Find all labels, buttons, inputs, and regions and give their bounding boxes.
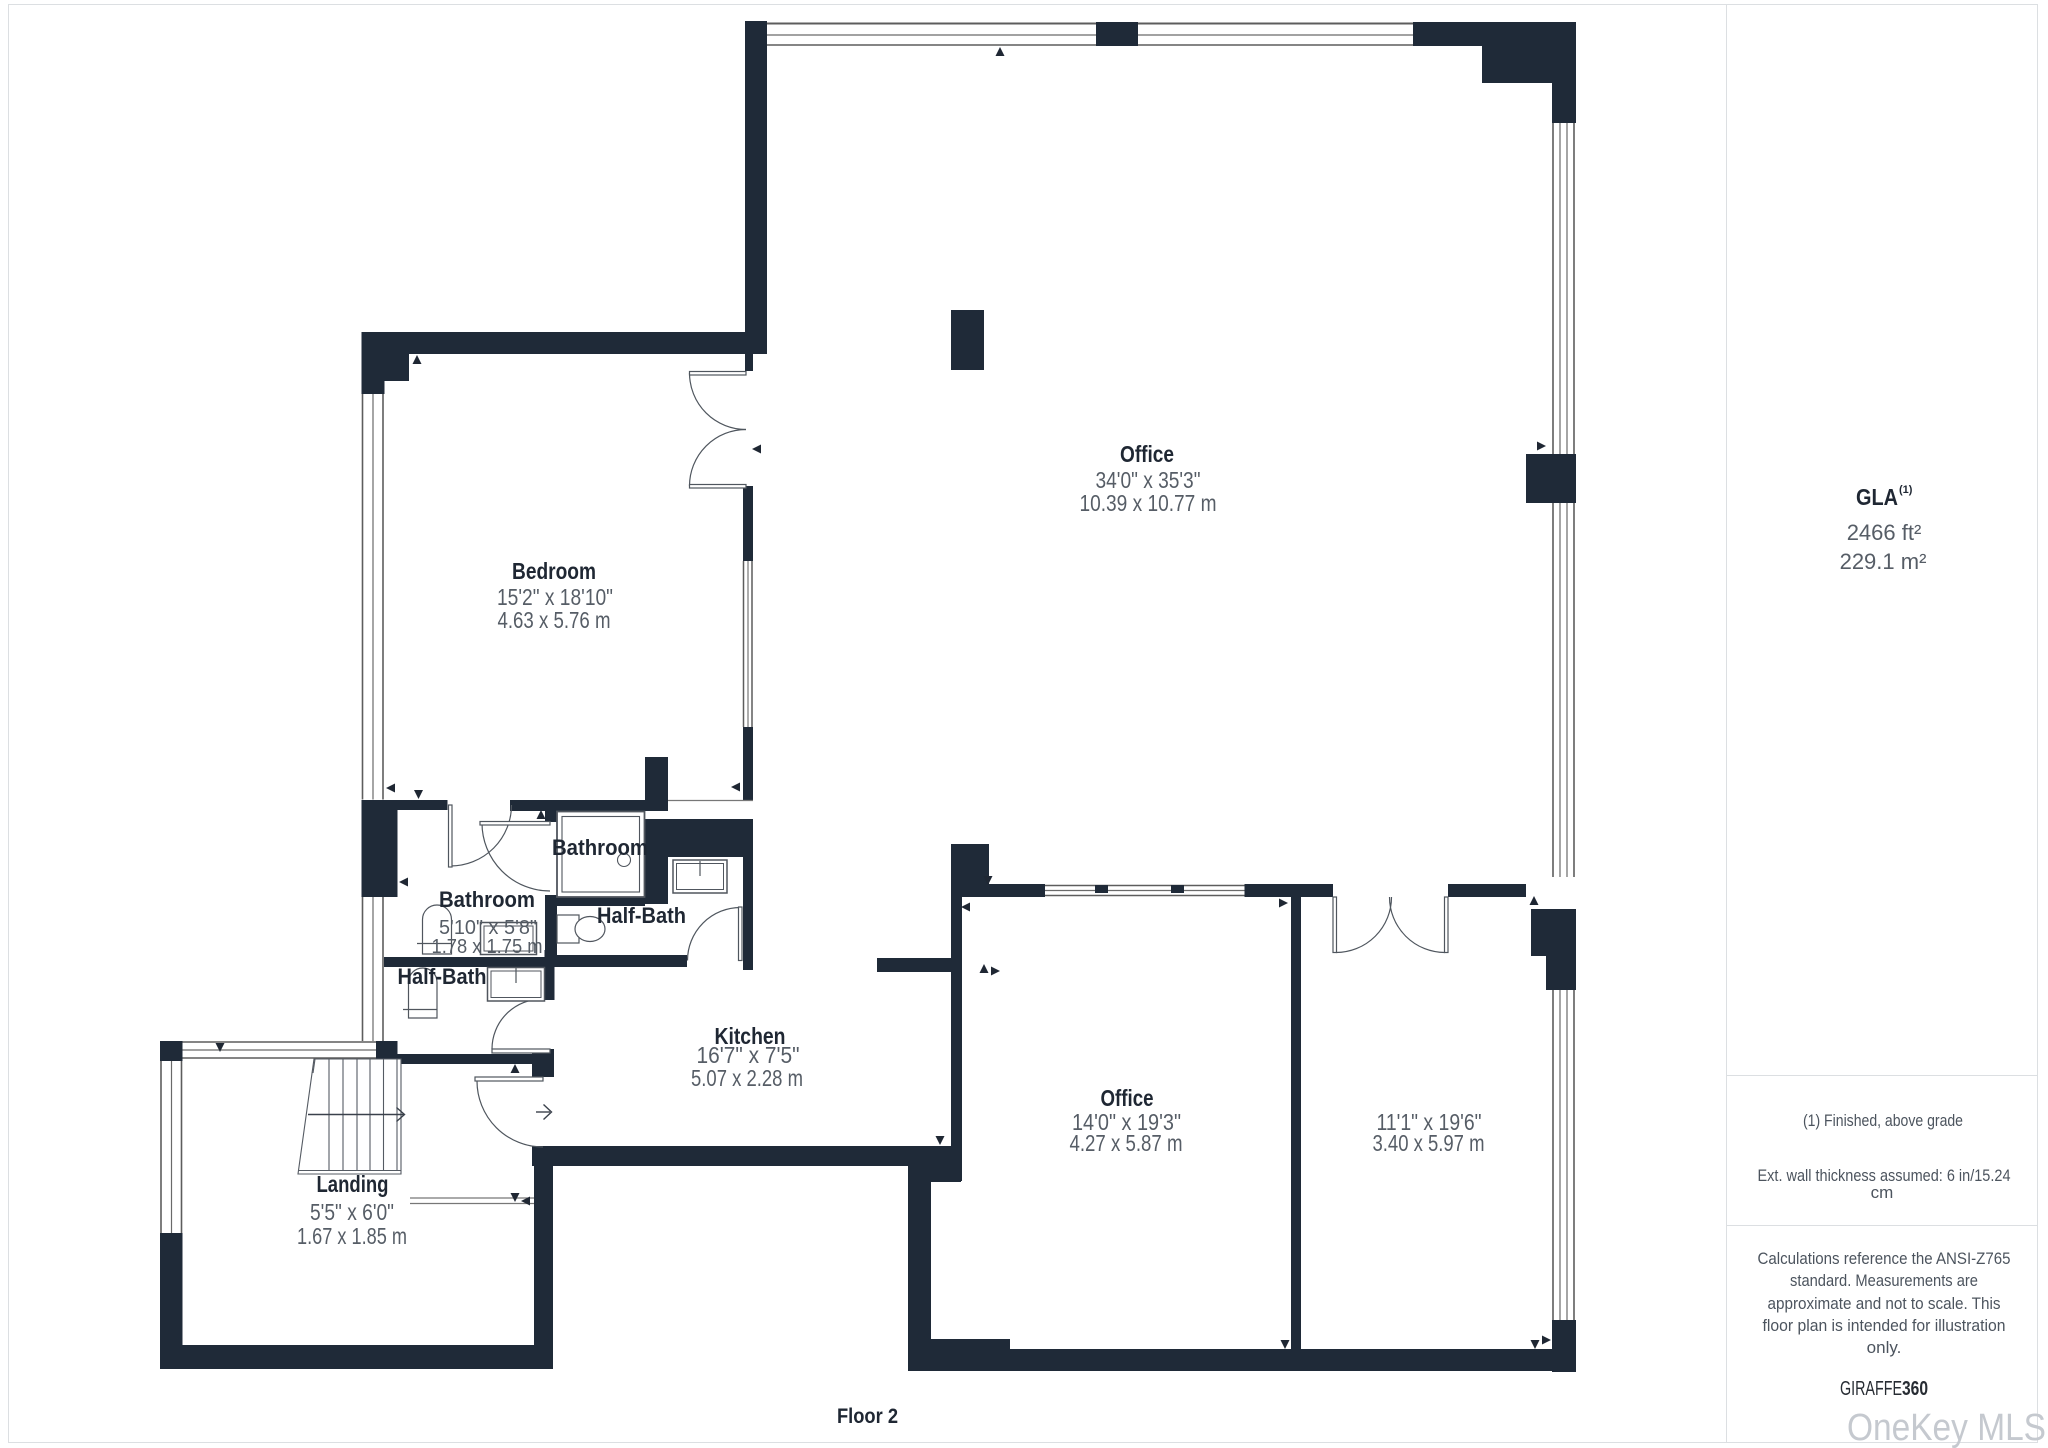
svg-text:Bedroom: Bedroom [512, 558, 596, 584]
svg-text:1.78 x 1.75 m: 1.78 x 1.75 m [432, 936, 543, 958]
svg-text:floor plan is intended for ill: floor plan is intended for illustration [1763, 1316, 2006, 1335]
svg-text:(1): (1) [1899, 484, 1913, 496]
svg-text:Bathroom: Bathroom [439, 887, 535, 912]
svg-text:Bathroom: Bathroom [552, 835, 648, 860]
svg-text:Calculations reference the ANS: Calculations reference the ANSI-Z765 [1758, 1249, 2011, 1268]
svg-text:4.27 x 5.87 m: 4.27 x 5.87 m [1070, 1130, 1183, 1156]
svg-text:GLA: GLA [1856, 484, 1898, 510]
svg-text:Half-Bath: Half-Bath [597, 903, 686, 928]
svg-text:cm: cm [1871, 1183, 1894, 1202]
svg-text:Floor 2: Floor 2 [837, 1405, 898, 1428]
svg-text:5.07 x 2.28 m: 5.07 x 2.28 m [691, 1065, 803, 1091]
svg-text:10.39 x 10.77 m: 10.39 x 10.77 m [1080, 490, 1217, 516]
svg-text:5'5" x 6'0": 5'5" x 6'0" [310, 1199, 394, 1225]
svg-text:229.1 m²: 229.1 m² [1840, 549, 1927, 574]
svg-text:OneKey MLS: OneKey MLS [1847, 1407, 2046, 1448]
svg-text:GIRAFFE: GIRAFFE [1840, 1378, 1902, 1400]
svg-text:Half-Bath: Half-Bath [398, 964, 487, 989]
svg-text:Office: Office [1120, 441, 1174, 467]
svg-text:1.67 x 1.85 m: 1.67 x 1.85 m [297, 1223, 407, 1249]
svg-text:approximate and not to scale.: approximate and not to scale. This [1768, 1294, 2001, 1313]
svg-text:standard. Measurements are: standard. Measurements are [1790, 1271, 1978, 1290]
svg-text:4.63 x 5.76 m: 4.63 x 5.76 m [498, 607, 611, 633]
svg-text:Office: Office [1101, 1085, 1154, 1111]
svg-text:360: 360 [1902, 1378, 1928, 1400]
svg-text:Landing: Landing [317, 1171, 389, 1197]
svg-text:3.40 x 5.97 m: 3.40 x 5.97 m [1373, 1130, 1485, 1156]
svg-text:only.: only. [1867, 1338, 1902, 1357]
svg-text:(1) Finished, above grade: (1) Finished, above grade [1803, 1111, 1963, 1130]
svg-text:2466 ft²: 2466 ft² [1847, 520, 1922, 545]
